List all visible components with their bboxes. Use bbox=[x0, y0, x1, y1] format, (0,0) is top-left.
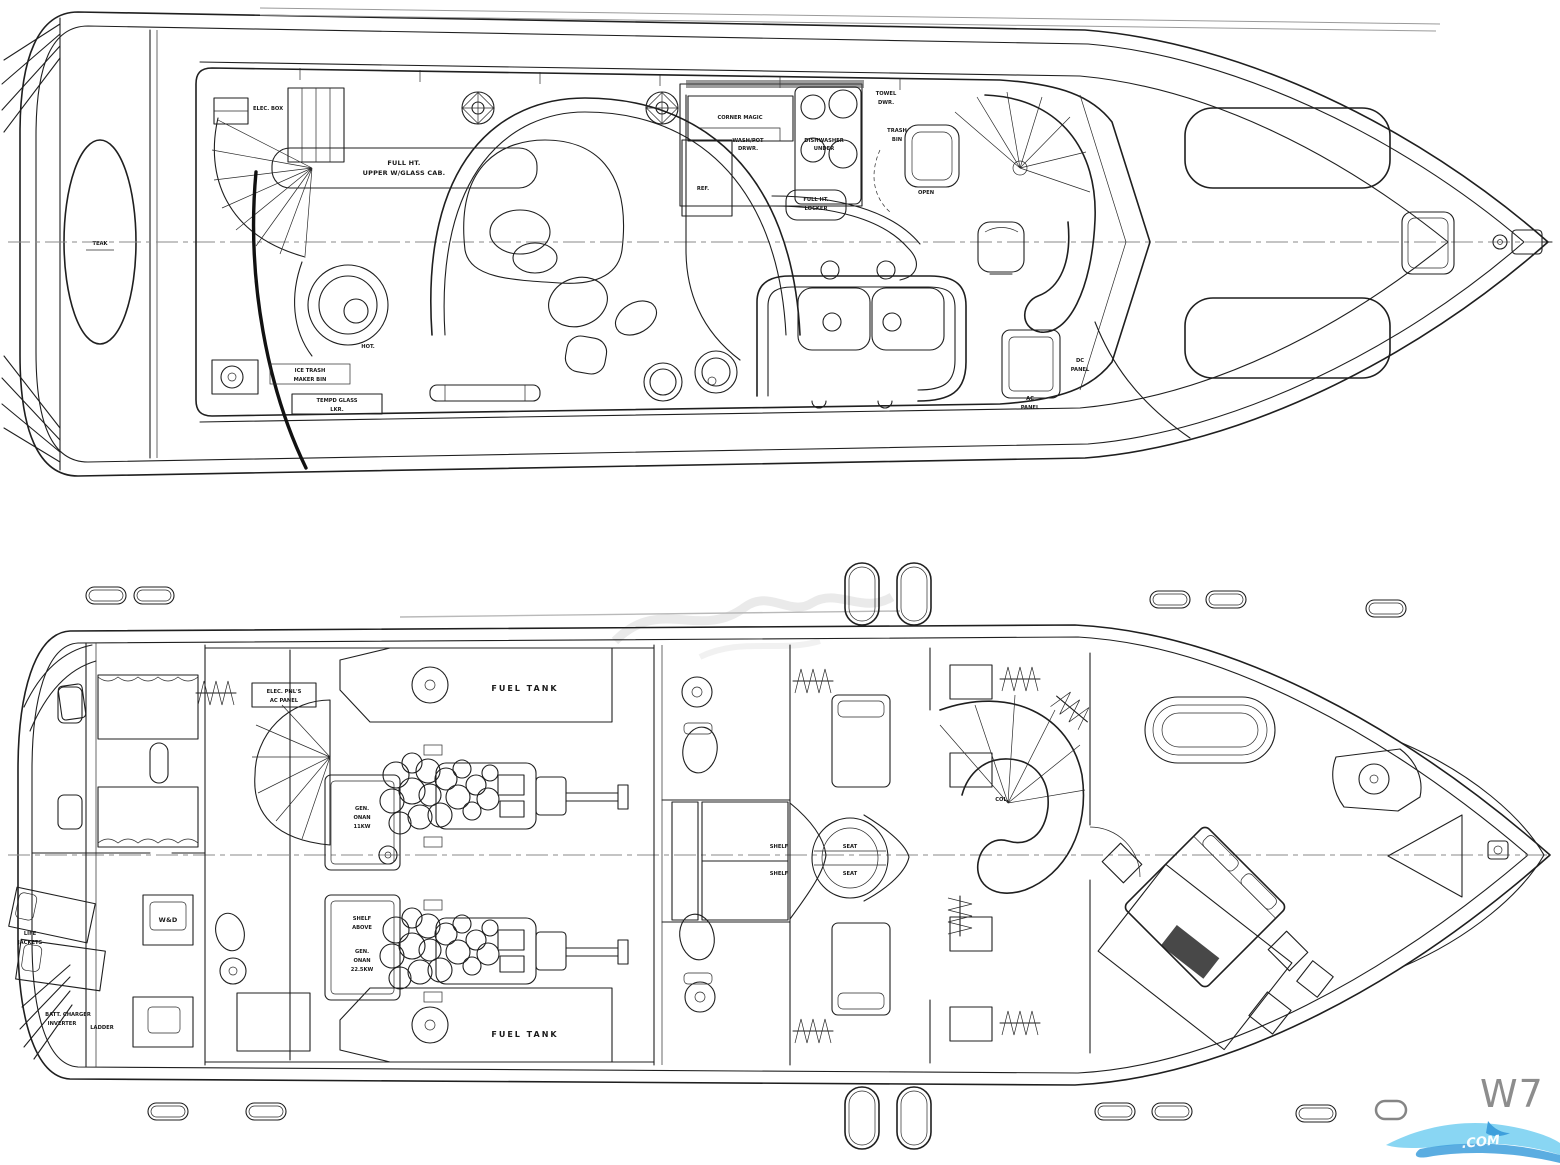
trash-label-1: TRASH bbox=[887, 128, 907, 134]
helm-settee bbox=[431, 98, 800, 335]
trash-label-2: BIN bbox=[892, 137, 902, 143]
engine-port bbox=[380, 745, 628, 847]
batt-charger-label-2: INVERTER bbox=[48, 1021, 77, 1027]
lower-spiral-staircase: COL. bbox=[940, 687, 1095, 936]
corner-magic-label: CORNER MAGIC bbox=[717, 115, 762, 121]
elec-pnls-label-1: ELEC. PNL'S bbox=[267, 689, 302, 695]
master-desk bbox=[1098, 864, 1292, 1049]
column-label: COL. bbox=[995, 797, 1009, 803]
full-locker-label-1: FULL HT. bbox=[803, 197, 828, 203]
dc-panel-label-1: DC bbox=[1076, 358, 1084, 364]
towel-label-1: TOWEL bbox=[876, 91, 897, 97]
fwd-spiral-staircase bbox=[955, 92, 1095, 332]
fuel-tank-aft bbox=[340, 988, 612, 1062]
elec-box-label: ELEC. BOX bbox=[253, 106, 283, 112]
dc-panel-label-2: PANEL bbox=[1071, 367, 1090, 373]
midship-seat bbox=[812, 818, 888, 898]
crew-spiral-stair bbox=[255, 700, 330, 845]
shelf-above-label-1: SHELF bbox=[353, 916, 372, 922]
yacht-deck-plans: TEAK ELEC. BOX FULL HT. UPPER W/GLASS CA… bbox=[0, 0, 1560, 1165]
gen1-label-2: ONAN bbox=[353, 815, 370, 821]
tempd-glass-label-2: LKR. bbox=[330, 407, 343, 413]
helm-chair bbox=[978, 222, 1024, 274]
ref-label: REF. bbox=[697, 186, 709, 192]
master-vanity bbox=[1333, 749, 1421, 811]
gen2-label-2: ONAN bbox=[353, 958, 370, 964]
shelf-above-label-2: ABOVE bbox=[352, 925, 372, 931]
crew-stairs-grating bbox=[237, 993, 310, 1051]
dinette bbox=[757, 261, 966, 408]
door-swing bbox=[254, 172, 306, 468]
elec-pnls-label-2: AC PANEL bbox=[270, 698, 299, 704]
dishwasher-label-2: UNDER bbox=[814, 146, 834, 152]
shower-grating-upper bbox=[702, 802, 788, 861]
fuel-tank-forward-label: FUEL TANK bbox=[491, 684, 558, 693]
shower-grating-lower bbox=[702, 861, 788, 920]
glass-cabinet-label-2: UPPER W/GLASS CAB. bbox=[363, 169, 446, 177]
tempd-glass-label-1: TEMPD GLASS bbox=[317, 398, 358, 404]
guest-bed-upper bbox=[832, 695, 890, 787]
deck-hatches bbox=[462, 92, 678, 124]
life-jackets-label-2: JACKETS bbox=[17, 940, 43, 946]
bow-steps-grating bbox=[1388, 815, 1462, 897]
seat-upper-label: SEAT bbox=[843, 844, 858, 850]
washpot-label-1: WASH/POT bbox=[732, 138, 764, 144]
life-jackets-label-1: LIFE bbox=[24, 931, 37, 937]
lower-deck-plan: LIFE JACKETS BATT. CHARGER INVERTER LADD… bbox=[0, 545, 1560, 1165]
gen2-label-1: GEN. bbox=[355, 949, 369, 955]
plan-code-label: W7 bbox=[1480, 1072, 1544, 1116]
ladder-label: LADDER bbox=[90, 1025, 113, 1031]
crew-toilet bbox=[212, 910, 249, 954]
dishwasher-label-1: DISHWASHER bbox=[804, 138, 843, 144]
galley-aft-lockers: TOWEL DWR. TRASH BIN OPEN bbox=[874, 91, 959, 212]
galley: CORNER MAGIC WASH/POT DRWR. DISHWASHER U… bbox=[680, 80, 920, 280]
guest-bed-lower bbox=[832, 923, 890, 1015]
engine-starboard bbox=[380, 900, 628, 1002]
ac-panel-label-1: AC bbox=[1026, 396, 1034, 402]
ac-panel-label-2: PANEL bbox=[1021, 405, 1040, 411]
icemaker-cabinet: ICE TRASH MAKER BIN TEMPD GLASS LKR. bbox=[212, 360, 540, 414]
crew-quarters: LIFE JACKETS BATT. CHARGER INVERTER LADD… bbox=[9, 675, 330, 1051]
seat-lower-label: SEAT bbox=[843, 871, 858, 877]
batt-charger-label-1: BATT. CHARGER bbox=[45, 1012, 91, 1018]
open-label: OPEN bbox=[918, 190, 934, 196]
generator-2 bbox=[325, 895, 400, 1000]
gen1-label-1: GEN. bbox=[355, 806, 369, 812]
stern-boarding-stairs bbox=[2, 24, 60, 462]
washpot-label-2: DRWR. bbox=[738, 146, 758, 152]
fuel-tank-aft-label: FUEL TANK bbox=[491, 1030, 558, 1039]
aft-spiral-staircase: ELEC. BOX bbox=[212, 88, 344, 468]
washer-dryer-label: W&D bbox=[159, 916, 178, 924]
fuel-tank-forward bbox=[340, 648, 612, 722]
shelf-lower-label: SHELF bbox=[770, 871, 789, 877]
main-deck-plan: TEAK ELEC. BOX FULL HT. UPPER W/GLASS CA… bbox=[0, 0, 1560, 545]
icemaker-label-1: ICE TRASH bbox=[295, 368, 326, 374]
bow-sun-pads bbox=[1185, 108, 1454, 378]
shelf-upper-label: SHELF bbox=[770, 844, 789, 850]
gen1-label-3: 11KW bbox=[354, 824, 371, 830]
trash-bin bbox=[905, 125, 959, 187]
wet-bar: HOT. bbox=[295, 262, 388, 356]
master-cabin bbox=[1098, 697, 1462, 1050]
towel-label-2: DWR. bbox=[878, 100, 894, 106]
icemaker-label-2: MAKER BIN bbox=[294, 377, 327, 383]
glass-cabinet-label-1: FULL HT. bbox=[387, 159, 420, 167]
guest-cabins bbox=[793, 665, 1040, 1043]
gen2-label-3: 22.5KW bbox=[351, 967, 374, 973]
hot-label: HOT. bbox=[361, 344, 375, 350]
full-locker-label-2: LOCKER bbox=[805, 206, 828, 212]
